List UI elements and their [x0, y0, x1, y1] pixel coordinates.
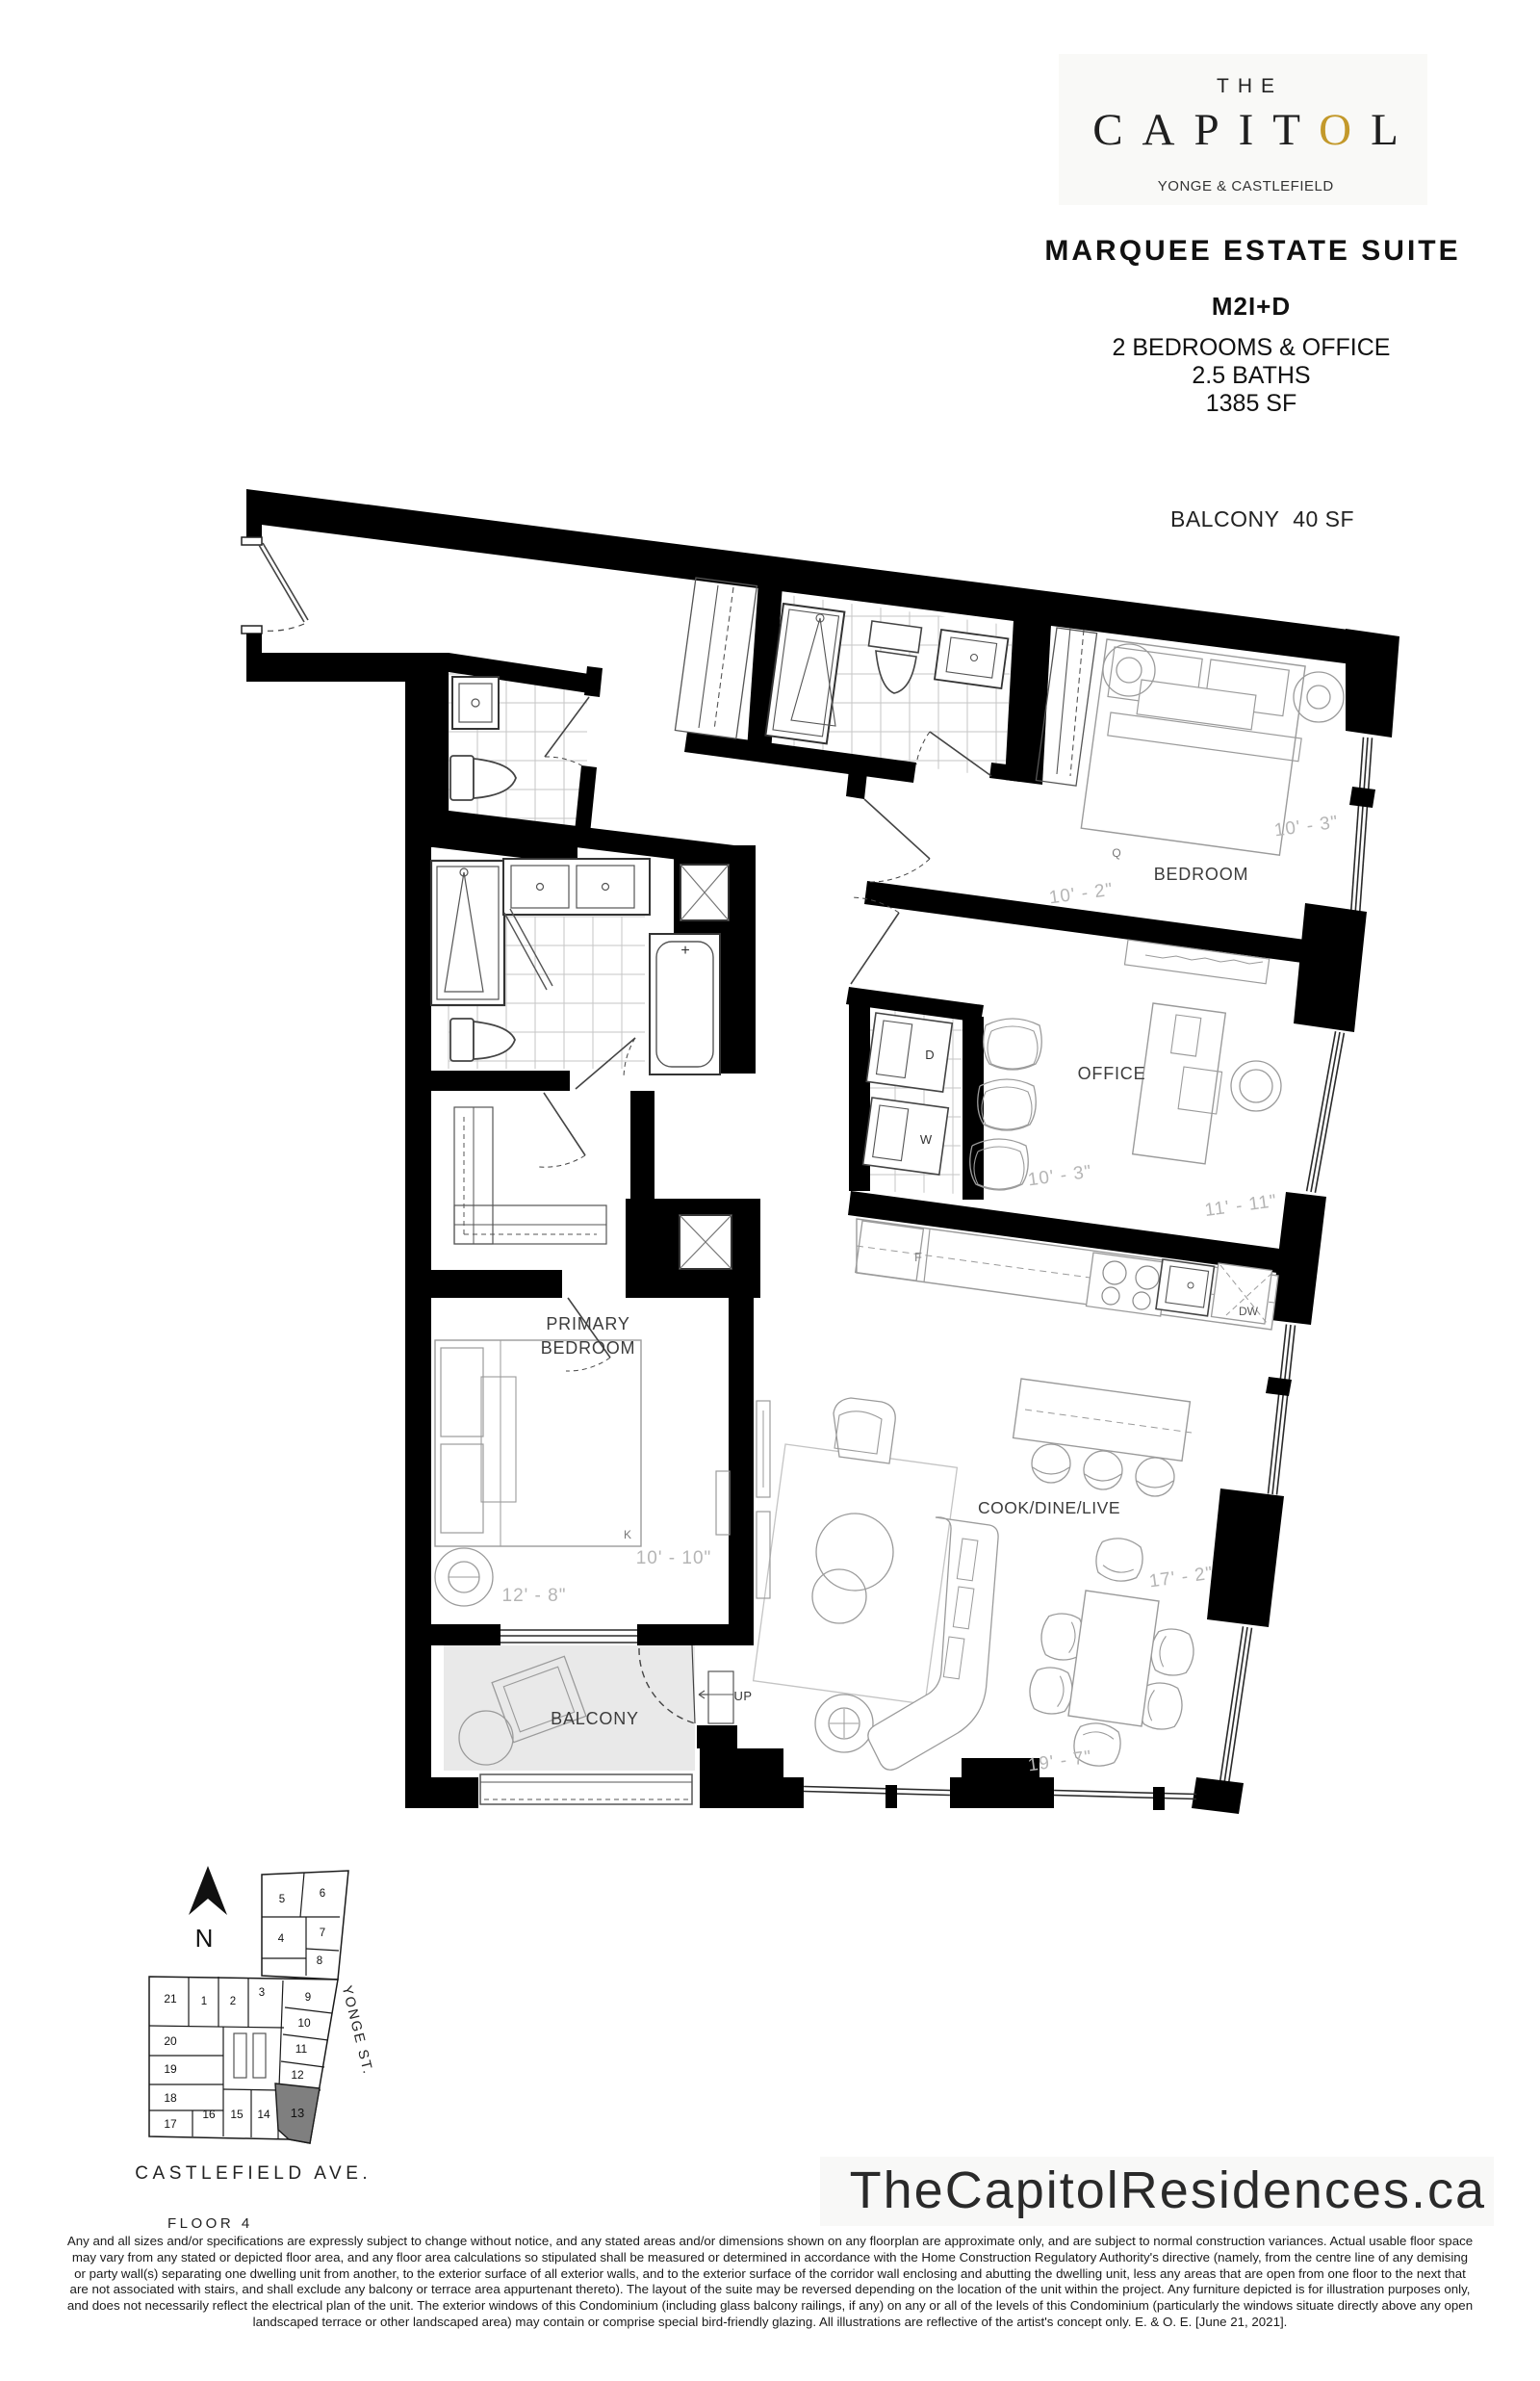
svg-text:15: 15	[230, 2108, 244, 2121]
svg-text:UP: UP	[733, 1689, 752, 1703]
svg-text:5: 5	[279, 1894, 285, 1905]
svg-text:D: D	[925, 1048, 934, 1062]
svg-text:17' - 2": 17' - 2"	[1148, 1564, 1215, 1592]
svg-text:W: W	[920, 1132, 933, 1147]
svg-text:PRIMARY: PRIMARY	[546, 1314, 629, 1333]
svg-text:18: 18	[164, 2091, 177, 2105]
svg-text:1: 1	[201, 1996, 207, 2007]
svg-text:10: 10	[297, 2016, 311, 2030]
svg-text:OFFICE: OFFICE	[1078, 1064, 1146, 1083]
svg-text:7: 7	[320, 1928, 325, 1939]
svg-text:19: 19	[164, 2062, 177, 2076]
svg-text:F: F	[914, 1250, 922, 1264]
svg-text:14: 14	[257, 2108, 270, 2121]
svg-text:21: 21	[164, 1992, 177, 2006]
svg-text:20: 20	[164, 2034, 177, 2048]
svg-text:11: 11	[295, 2042, 308, 2056]
svg-text:11' - 11": 11' - 11"	[1203, 1191, 1278, 1221]
svg-text:2: 2	[230, 1996, 236, 2007]
svg-text:3: 3	[259, 1987, 265, 1999]
svg-text:12' - 8": 12' - 8"	[502, 1586, 567, 1606]
svg-text:6: 6	[320, 1888, 325, 1900]
svg-text:BALCONY: BALCONY	[551, 1709, 639, 1728]
svg-text:BEDROOM: BEDROOM	[1154, 865, 1249, 884]
svg-text:9: 9	[305, 1992, 311, 2004]
svg-text:K: K	[624, 1528, 631, 1541]
svg-text:YONGE ST.: YONGE ST.	[339, 1984, 376, 2077]
svg-text:10' - 2": 10' - 2"	[1048, 880, 1115, 909]
svg-text:+: +	[680, 943, 689, 959]
svg-text:N: N	[195, 1924, 214, 1953]
svg-text:8: 8	[317, 1955, 322, 1967]
svg-text:13: 13	[291, 2106, 304, 2120]
svg-text:17: 17	[164, 2117, 177, 2131]
svg-text:10' - 10": 10' - 10"	[636, 1548, 712, 1568]
svg-text:COOK/DINE/LIVE: COOK/DINE/LIVE	[978, 1498, 1120, 1517]
svg-text:Q: Q	[1112, 846, 1120, 860]
svg-text:DW: DW	[1239, 1305, 1259, 1318]
svg-text:12: 12	[291, 2068, 304, 2082]
svg-text:10' - 3": 10' - 3"	[1027, 1162, 1093, 1191]
svg-text:19' - 7": 19' - 7"	[1027, 1747, 1093, 1776]
svg-text:16: 16	[202, 2108, 216, 2121]
svg-text:4: 4	[278, 1933, 285, 1945]
svg-text:BEDROOM: BEDROOM	[541, 1338, 636, 1358]
